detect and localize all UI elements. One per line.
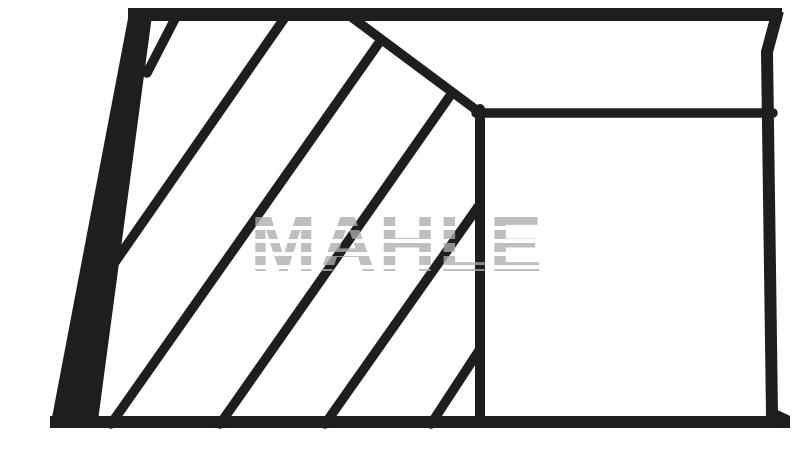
hatch-line-1 (147, 13, 178, 73)
hatch-line-4 (220, 93, 452, 424)
bottom-edge (50, 416, 790, 428)
piston-ring-cross-section-drawing (0, 0, 798, 473)
hatch-line-6 (431, 349, 480, 424)
left-edge-wedge (50, 8, 153, 428)
hatch-line-3 (111, 40, 381, 424)
top-edge (128, 8, 782, 21)
diagram-canvas: MAHLE (0, 0, 798, 473)
right-edge (767, 11, 787, 421)
